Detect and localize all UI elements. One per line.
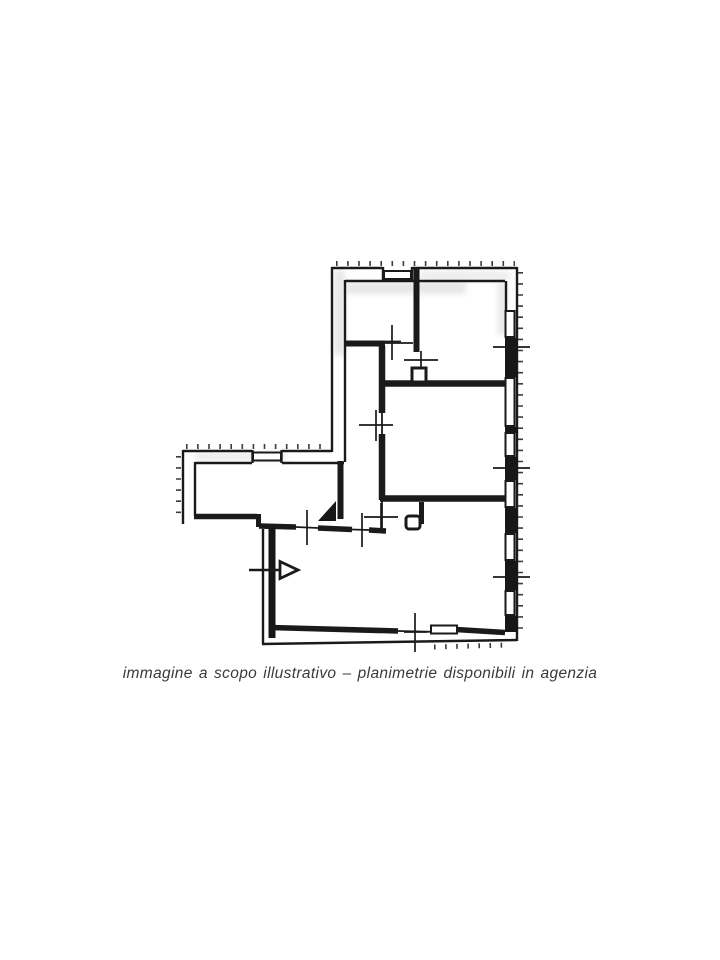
page: immagine a scopo illustrativo – planimet…	[0, 0, 720, 960]
filled-corner-triangle	[318, 501, 336, 521]
floor-plan	[0, 0, 720, 960]
scan-smudges	[196, 270, 510, 461]
caption: immagine a scopo illustrativo – planimet…	[0, 665, 720, 683]
